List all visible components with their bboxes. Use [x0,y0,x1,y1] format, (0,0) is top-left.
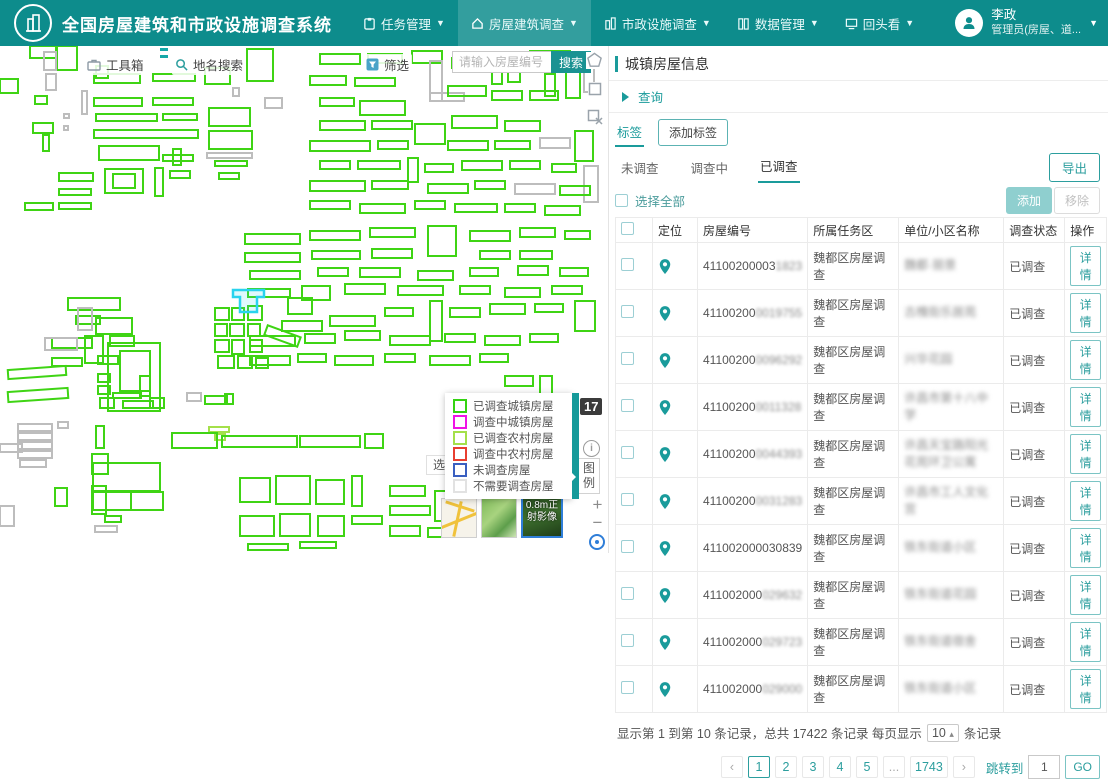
prev-page-button[interactable]: ‹ [721,756,743,778]
detail-button[interactable]: 详情 [1070,669,1101,709]
jump-page-input[interactable] [1028,755,1060,779]
chevron-down-icon: ▼ [702,18,711,28]
house-info-panel: 城镇房屋信息 查询 标签 添加标签 未调查 调查中 已调查 导出 选择全部 添加… [608,46,1108,553]
house-number-input[interactable] [452,51,551,73]
clear-selection-tool[interactable] [587,109,603,125]
detail-button[interactable]: 详情 [1070,340,1101,380]
search-icon [175,58,188,71]
row-checkbox[interactable] [621,399,634,412]
filter-button[interactable]: 筛选 [363,54,412,75]
task-area: 魏都区房屋调查 [808,666,899,713]
survey-status: 已调查 [1004,337,1065,384]
detail-button[interactable]: 详情 [1070,575,1101,615]
legend-item[interactable]: 不需要调查房屋 [453,478,572,494]
unit-name: 魏都·丽景 [899,243,1004,290]
location-pin-icon[interactable] [658,305,672,322]
page-button-3[interactable]: 3 [802,756,824,778]
survey-status: 已调查 [1004,478,1065,525]
house-number: 411002000019755 [698,290,808,337]
add-button[interactable]: 添加 [1006,187,1052,214]
table-row: 411002000019755 魏都区房屋调查 古槐街乐居苑 已调查 详情 [616,290,1107,337]
tab-surveyed[interactable]: 已调查 [758,150,800,183]
task-area: 魏都区房屋调查 [808,572,899,619]
house-icon [471,17,484,30]
export-button[interactable]: 导出 [1049,153,1100,182]
filter-icon [366,58,379,71]
legend-item[interactable]: 已调查农村房屋 [453,430,572,446]
jump-to-label: 跳转到 [986,758,1024,777]
legend-item[interactable]: 已调查城镇房屋 [453,398,572,414]
unit-name: 许昌市第十八中学 [899,384,1004,431]
chevron-right-icon [622,92,634,102]
house-table: 定位 房屋编号 所属任务区 单位/小区名称 调查状态 操作 4110020000… [615,217,1107,713]
user-role: 管理员(房屋、道... [991,24,1081,38]
table-row: 411002000030839 魏都区房屋调查 铁东街道小区 已调查 详情 [616,525,1107,572]
row-checkbox[interactable] [621,493,634,506]
house-number: 411002000030839 [698,525,808,572]
house-number: 411002000044393 [698,431,808,478]
task-area: 魏都区房屋调查 [808,384,899,431]
place-search-button[interactable]: 地名搜索 [172,54,246,75]
house-number: 411002000096292 [698,337,808,384]
legend-color-swatch [453,431,467,445]
location-pin-icon[interactable] [658,587,672,604]
go-button[interactable]: GO [1065,755,1100,779]
table-row: 411002000044393 魏都区房屋调查 许昌天宝路阳光花苑环卫公寓 已调… [616,431,1107,478]
location-pin-icon[interactable] [658,634,672,651]
table-header-row: 定位 房屋编号 所属任务区 单位/小区名称 调查状态 操作 [616,218,1107,243]
row-checkbox[interactable] [621,446,634,459]
survey-status: 已调查 [1004,666,1065,713]
unit-name: 许昌天宝路阳光花苑环卫公寓 [899,431,1004,478]
survey-status: 已调查 [1004,431,1065,478]
menu-municipal-survey[interactable]: 市政设施调查▼ [591,0,724,46]
location-pin-icon[interactable] [658,399,672,416]
toolbox-icon [87,59,101,71]
survey-status: 已调查 [1004,290,1065,337]
chevron-down-icon: ▼ [1089,18,1098,28]
panel-title: 城镇房屋信息 [625,54,709,74]
table-row: 411002000096292 魏都区房屋调查 兴华花园 已调查 详情 [616,337,1107,384]
app-title: 全国房屋建筑和市政设施调查系统 [62,11,332,36]
page-button-1743[interactable]: 1743 [910,756,948,778]
task-area: 魏都区房屋调查 [808,619,899,666]
chevron-down-icon: ▼ [810,18,819,28]
locate-icon[interactable] [589,534,605,550]
survey-status: 已调查 [1004,572,1065,619]
ellipsis: ... [883,756,905,778]
app-header: 全国房屋建筑和市政设施调查系统 任务管理▼ 房屋建筑调查▼ 市政设施调查▼ 数据… [0,0,1108,46]
page-button-4[interactable]: 4 [829,756,851,778]
task-area: 魏都区房屋调查 [808,337,899,384]
table-row: 411002000031283 魏都区房屋调查 许昌市工人文化宫 已调查 详情 [616,478,1107,525]
detail-button[interactable]: 详情 [1070,246,1101,286]
task-area: 魏都区房屋调查 [808,478,899,525]
draw-rectangle-tool[interactable] [588,82,602,96]
zoom-in-button[interactable]: + [589,498,606,514]
tab-not-surveyed[interactable]: 未调查 [619,152,661,183]
legend-color-swatch [453,399,467,413]
chevron-down-icon: ▼ [569,18,578,28]
row-checkbox[interactable] [621,352,634,365]
location-pin-icon[interactable] [658,446,672,463]
survey-status: 已调查 [1004,619,1065,666]
table-row: 411002000029723 魏都区房屋调查 铁东街道宿舍 已调查 详情 [616,619,1107,666]
task-area: 魏都区房屋调查 [808,431,899,478]
main-menu: 任务管理▼ 房屋建筑调查▼ 市政设施调查▼ 数据管理▼ 回头看▼ [350,0,927,46]
monitor-icon [845,17,858,30]
clipboard-icon [363,17,376,30]
house-number: 411002000029632 [698,572,808,619]
unit-name: 铁东街道小区 [899,525,1004,572]
chevron-down-icon: ▼ [905,18,914,28]
person-icon [960,14,978,32]
info-icon[interactable]: i [583,440,600,457]
legend-item[interactable]: 未调查房屋 [453,462,572,478]
house-number: 411002000029723 [698,619,808,666]
legend-item[interactable]: 调查中农村房屋 [453,446,572,462]
unit-name: 铁东街道花园 [899,572,1004,619]
unit-name: 兴华花园 [899,337,1004,384]
facility-icon [604,17,617,30]
map-canvas[interactable]: 工具箱 地名搜索 筛选 搜索 17 i 图例 + − 选 0.8m正 [0,46,608,553]
row-checkbox[interactable] [621,258,634,271]
detail-button[interactable]: 详情 [1070,528,1101,568]
row-checkbox[interactable] [621,587,634,600]
task-area: 魏都区房屋调查 [808,525,899,572]
add-tag-button[interactable]: 添加标签 [658,119,728,146]
page-button-1[interactable]: 1 [748,756,770,778]
unit-name: 古槐街乐居苑 [899,290,1004,337]
task-area: 魏都区房屋调查 [808,290,899,337]
unit-name: 铁东街道小区 [899,666,1004,713]
caret-up-icon: ▴ [949,729,954,739]
legend-color-swatch [453,479,467,493]
table-row: 411002000031823 魏都区房屋调查 魏都·丽景 已调查 详情 [616,243,1107,290]
page-size-select[interactable]: 10 ▴ [927,724,959,742]
database-icon [737,17,750,30]
house-number: 411002000029000 [698,666,808,713]
user-name: 李政 [991,8,1081,24]
detail-button[interactable]: 详情 [1070,434,1101,474]
unit-name: 铁东街道宿舍 [899,619,1004,666]
select-all-checkbox[interactable] [615,194,628,207]
app-logo-icon [14,4,52,42]
house-number: 411002000011328 [698,384,808,431]
survey-status: 已调查 [1004,525,1065,572]
basemap-road-thumbnail[interactable] [441,498,477,538]
location-pin-icon[interactable] [658,681,672,698]
table-row: 411002000029632 魏都区房屋调查 铁东街道花园 已调查 详情 [616,572,1107,619]
location-pin-icon[interactable] [658,352,672,369]
tab-tags[interactable]: 标签 [615,118,644,147]
location-pin-icon[interactable] [658,258,672,275]
tab-in-progress[interactable]: 调查中 [689,152,731,183]
house-number-search: 搜索 [452,51,591,73]
legend-collapse-handle[interactable] [572,393,579,499]
query-expander[interactable]: 查询 [609,81,1108,112]
row-checkbox[interactable] [621,681,634,694]
detail-button[interactable]: 详情 [1070,481,1101,521]
location-pin-icon[interactable] [658,493,672,510]
toolbox-button[interactable]: 工具箱 [84,54,147,75]
pagination: ‹12345...1743›跳转到 GO [609,755,1100,779]
next-page-button[interactable]: › [953,756,975,778]
chevron-down-icon: ▼ [436,18,445,28]
page-button-5[interactable]: 5 [856,756,878,778]
house-number: 411002000031823 [698,243,808,290]
table-row: 411002000029000 魏都区房屋调查 铁东街道小区 已调查 详情 [616,666,1107,713]
avatar [955,9,983,37]
zoom-level-badge: 17 [580,398,602,415]
survey-status: 已调查 [1004,243,1065,290]
legend-color-swatch [453,447,467,461]
draw-circle-tool[interactable] [586,52,603,69]
legend-color-swatch [453,463,467,477]
detail-button[interactable]: 详情 [1070,622,1101,662]
row-checkbox[interactable] [621,305,634,318]
row-checkbox[interactable] [621,540,634,553]
header-checkbox[interactable] [621,222,634,235]
page-button-2[interactable]: 2 [775,756,797,778]
location-pin-icon[interactable] [658,540,672,557]
user-menu[interactable]: 李政 管理员(房屋、道... ▼ [955,0,1098,46]
table-row: 411002000011328 魏都区房屋调查 许昌市第十八中学 已调查 详情 [616,384,1107,431]
select-all-label: 选择全部 [635,191,685,210]
detail-button[interactable]: 详情 [1070,293,1101,333]
legend-item[interactable]: 调查中城镇房屋 [453,414,572,430]
menu-data-management[interactable]: 数据管理▼ [724,0,832,46]
records-info: 显示第 1 到第 10 条记录，总共 17422 条记录 每页显示 10 ▴ 条… [617,723,1108,742]
house-number: 411002000031283 [698,478,808,525]
survey-status: 已调查 [1004,384,1065,431]
remove-button[interactable]: 移除 [1054,187,1100,214]
menu-building-survey[interactable]: 房屋建筑调查▼ [458,0,591,46]
map-legend: 已调查城镇房屋 调查中城镇房屋 已调查农村房屋 调查中农村房屋 未调查房屋 不需… [445,393,572,499]
basemap-terrain-thumbnail[interactable] [481,498,517,538]
row-checkbox[interactable] [621,634,634,647]
menu-review[interactable]: 回头看▼ [832,0,927,46]
legend-color-swatch [453,415,467,429]
map-search-button[interactable]: 搜索 [551,51,591,73]
detail-button[interactable]: 详情 [1070,387,1101,427]
unit-name: 许昌市工人文化宫 [899,478,1004,525]
menu-task-management[interactable]: 任务管理▼ [350,0,458,46]
legend-toggle-button[interactable]: 图例 [578,458,600,494]
zoom-out-button[interactable]: − [589,516,606,532]
task-area: 魏都区房屋调查 [808,243,899,290]
